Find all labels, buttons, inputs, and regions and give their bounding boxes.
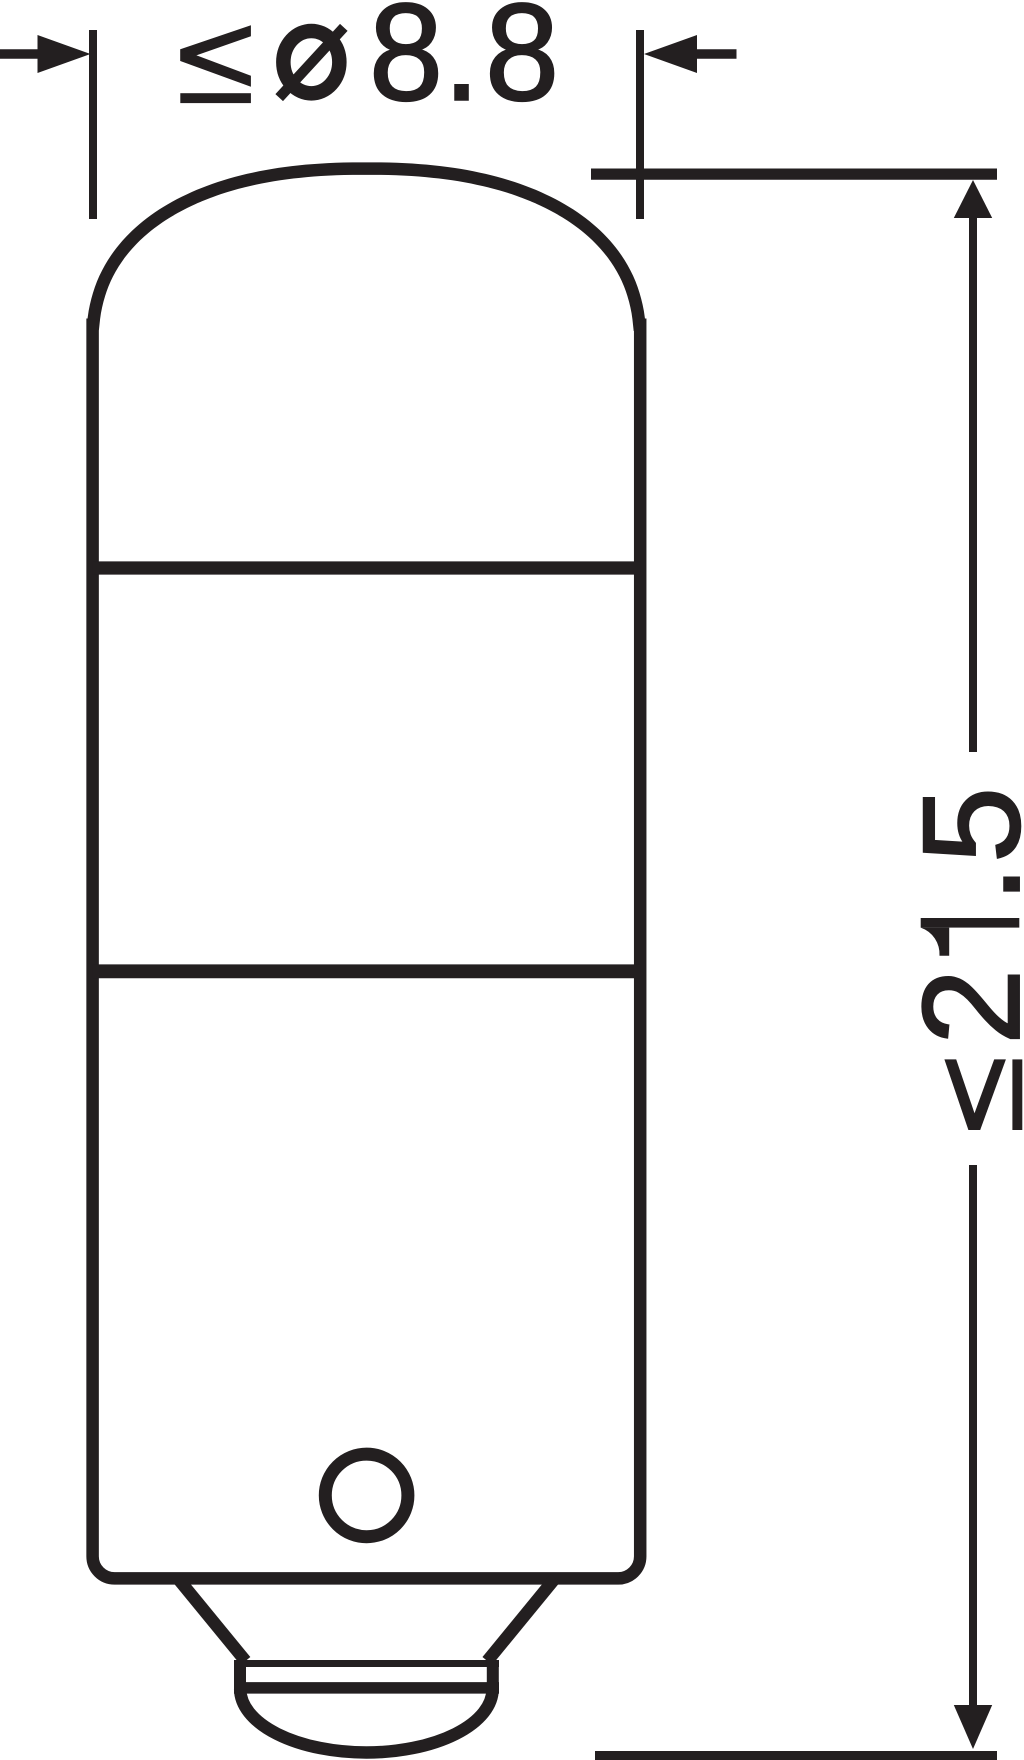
svg-text:5: 5 [895, 787, 1024, 864]
svg-text:2: 2 [895, 968, 1024, 1045]
svg-text:.: . [443, 0, 480, 129]
svg-text:.: . [895, 865, 1024, 903]
svg-text:8: 8 [369, 0, 443, 129]
svg-text:8: 8 [485, 0, 559, 129]
